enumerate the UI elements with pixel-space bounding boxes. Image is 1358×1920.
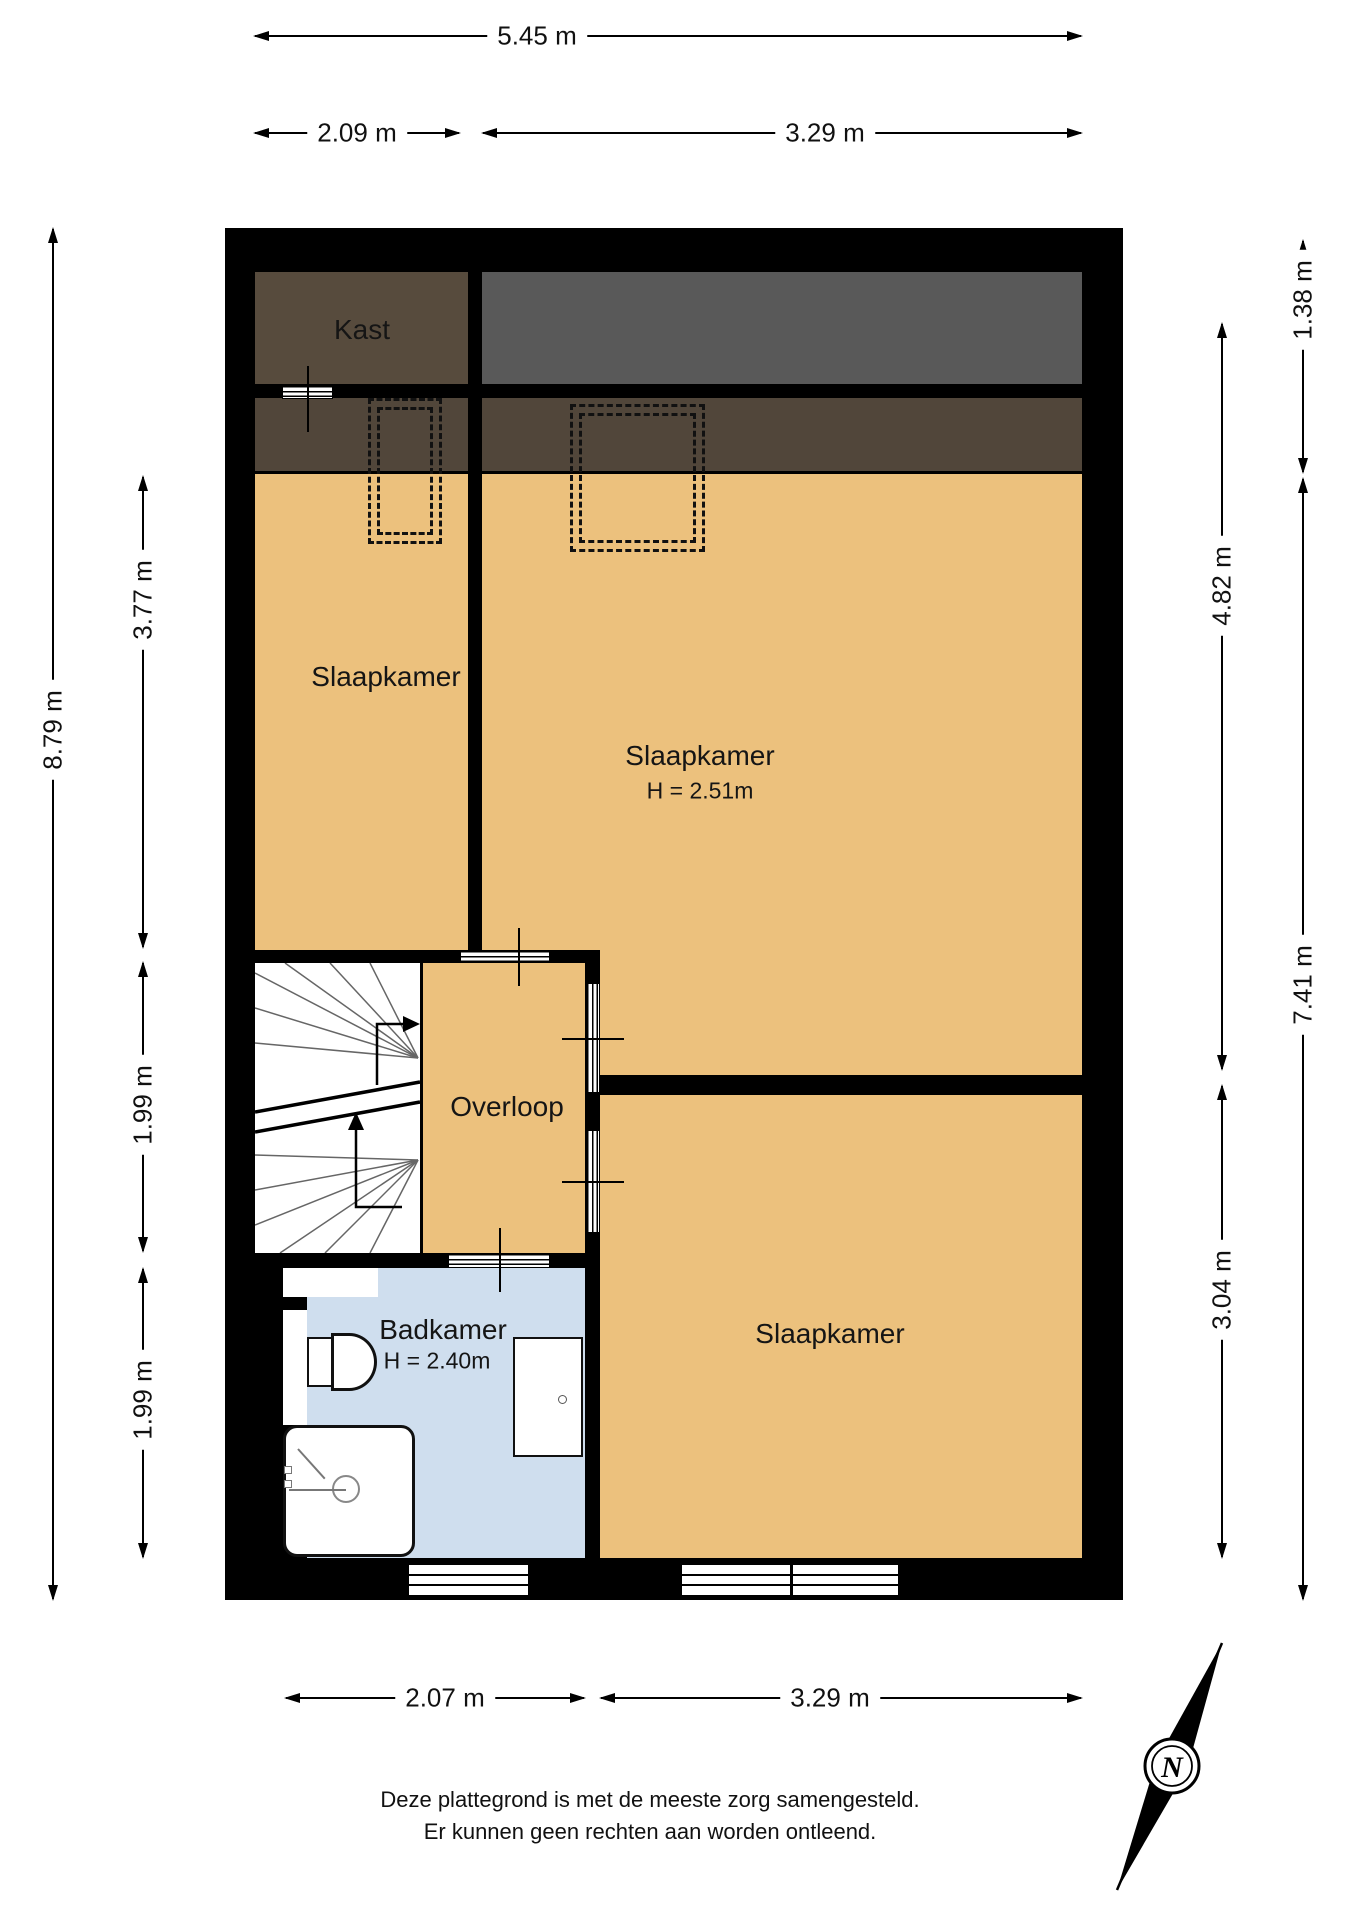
- bathroom-door-tick: [499, 1228, 501, 1292]
- landing-door-bedroom-right-tick: [562, 1038, 624, 1040]
- closet-door-tick: [307, 366, 309, 432]
- disclaimer: Deze plattegrond is met de meeste zorg s…: [280, 1784, 1020, 1848]
- room-height-bathroom: H = 2.40m: [384, 1348, 491, 1375]
- dimension-right-upper: 4.82 m: [1216, 323, 1228, 1070]
- roof-window-right-inner: [579, 413, 696, 543]
- dimension-bottom-left: 2.07 m: [285, 1692, 585, 1704]
- bedroom-left-door: [460, 950, 550, 963]
- room-label-bedroom-bottom: Slaapkamer: [755, 1318, 904, 1350]
- washbasin-tap: [558, 1395, 567, 1404]
- roof-window-left-inner: [377, 407, 433, 535]
- shower-control-2: [284, 1480, 292, 1488]
- shower-control-1: [284, 1466, 292, 1474]
- dimension-top-total: 5.45 m: [254, 30, 1082, 42]
- bedroom-right-floor-b: [600, 950, 1082, 1075]
- compass: N: [1090, 1628, 1260, 1918]
- bathroom-niche-left: [283, 1310, 307, 1425]
- disclaimer-line-2: Er kunnen geen rechten aan worden ontlee…: [280, 1816, 1020, 1848]
- landing-door-bedroom-bottom-tick: [562, 1181, 624, 1183]
- dimension-left-upper: 3.77 m: [137, 476, 149, 948]
- bedroom-left-door-tick: [518, 928, 520, 986]
- shower-arm: [289, 1489, 346, 1491]
- dimension-top-left: 2.09 m: [254, 127, 460, 139]
- room-height-bedroom-right: H = 2.51m: [647, 778, 754, 805]
- compass-needle-north: [1167, 1643, 1222, 1752]
- bedroom-left-floor: [255, 474, 468, 950]
- staircase: [255, 963, 423, 1253]
- room-label-bathroom: Badkamer: [379, 1314, 507, 1346]
- bathroom-wall-strip-a: [283, 1297, 307, 1310]
- washbasin-unit: [513, 1337, 583, 1457]
- dimension-top-right: 3.29 m: [482, 127, 1082, 139]
- dimension-left-middle: 1.99 m: [137, 962, 149, 1252]
- dimension-bottom-right: 3.29 m: [600, 1692, 1082, 1704]
- dimension-left-lower: 1.99 m: [137, 1268, 149, 1558]
- bedroom-bottom-window: [680, 1563, 900, 1597]
- bathroom-window: [407, 1563, 530, 1597]
- dimension-right-lower: 3.04 m: [1216, 1085, 1228, 1558]
- room-label-landing: Overloop: [450, 1091, 564, 1123]
- toilet-cistern: [307, 1337, 333, 1387]
- dimension-left-total: 8.79 m: [47, 228, 59, 1600]
- compass-north-label: N: [1160, 1751, 1184, 1784]
- dimension-right-total: 7.41 m: [1297, 478, 1309, 1600]
- room-label-closet: Kast: [334, 314, 390, 346]
- room-label-bedroom-right: Slaapkamer: [625, 740, 774, 772]
- bathroom-recess-top: [283, 1268, 378, 1297]
- stair-arrowhead-right: [403, 1016, 420, 1032]
- room-label-bedroom-left: Slaapkamer: [311, 661, 460, 693]
- floorplan-canvas: Kast Slaapkamer Slaapkamer H = 2.51m Ove…: [0, 0, 1358, 1920]
- stair-break-line: [255, 1082, 420, 1132]
- compass-needle-south: [1117, 1778, 1175, 1890]
- disclaimer-line-1: Deze plattegrond is met de meeste zorg s…: [280, 1784, 1020, 1816]
- attic-storage-floor: [482, 272, 1082, 384]
- window-mullion: [790, 1565, 793, 1595]
- dimension-right-top: 1.38 m: [1297, 240, 1309, 473]
